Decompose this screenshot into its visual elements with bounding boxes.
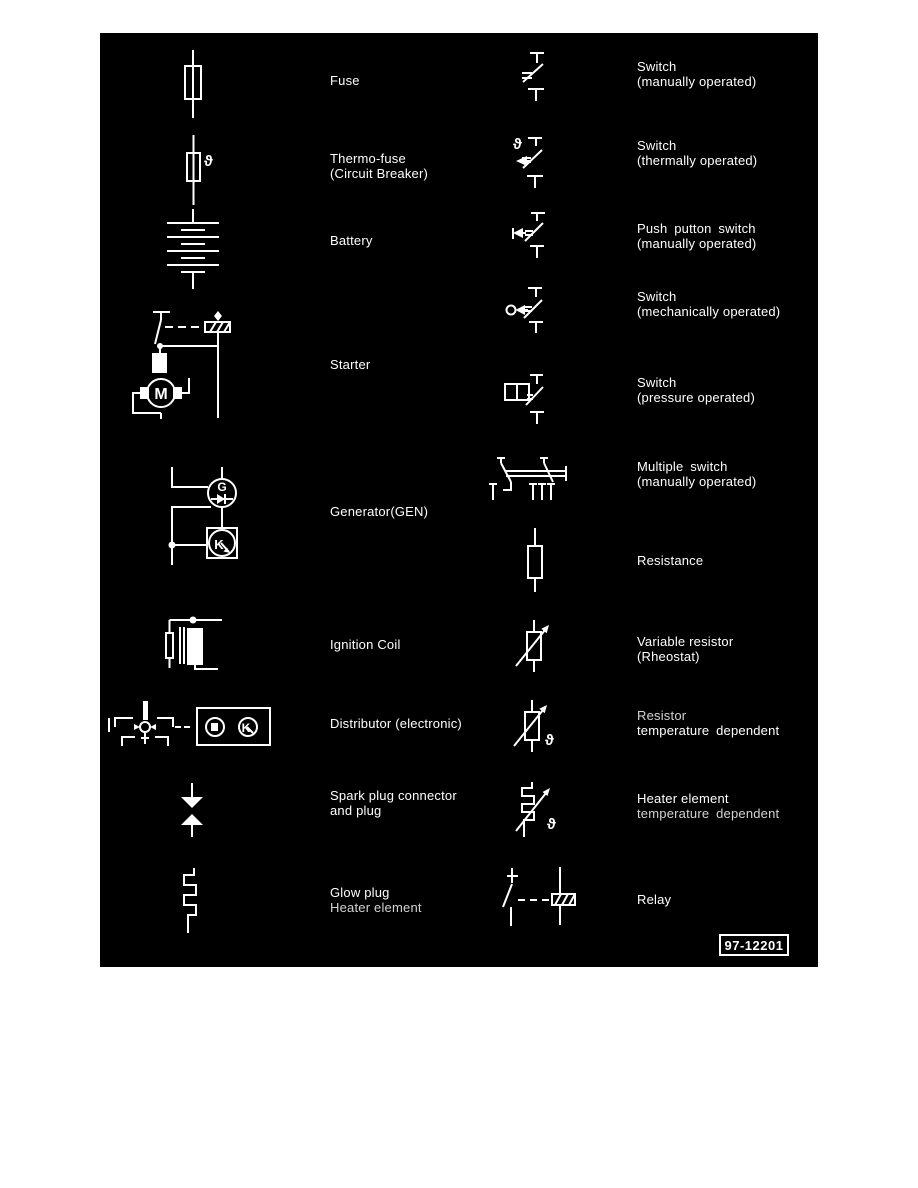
theta-glyph: ϑ — [204, 153, 213, 170]
symbol-legend-panel: ϑ — [100, 33, 818, 967]
label-line: Resistance — [637, 554, 703, 569]
label-line: (Circuit Breaker) — [330, 167, 428, 182]
label-line: and plug — [330, 804, 457, 819]
label-line: Generator(GEN) — [330, 505, 428, 520]
switch-mechanical-label: Switch (mechanically operated) — [637, 290, 780, 319]
resistor-temperature-dependent-icon: ϑ — [510, 700, 560, 754]
label-line: Ignition Coil — [330, 638, 401, 653]
switch-pressure-label: Switch (pressure operated) — [637, 376, 755, 405]
label-line: temperature dependent — [637, 724, 779, 739]
label-line: Glow plug — [330, 886, 422, 901]
heater-element-temperature-dependent-label: Heater element temperature dependent — [637, 792, 779, 821]
switch-pressure-operated-icon — [503, 372, 549, 426]
variable-resistor-label: Variable resistor (Rheostat) — [637, 635, 733, 664]
switch-manual-label: Switch (manually operated) — [637, 60, 756, 89]
starter-icon: M — [130, 310, 260, 422]
label-line: (manually operated) — [637, 475, 756, 490]
spark-plug-connector-label: Spark plug connector and plug — [330, 789, 457, 818]
switch-thermal-label: Switch (thermally operated) — [637, 139, 757, 168]
glow-plug-icon — [180, 868, 204, 934]
fuse-label: Fuse — [330, 74, 360, 89]
generator-icon: G K — [158, 465, 248, 573]
battery-icon — [164, 209, 222, 289]
switch-manually-operated-icon — [521, 51, 547, 101]
label-line: Fuse — [330, 74, 360, 89]
label-line: Switch — [637, 290, 780, 305]
label-line: Distributor (electronic) — [330, 717, 462, 732]
label-line: temperature dependent — [637, 807, 779, 822]
thermo-fuse-label: Thermo-fuse (Circuit Breaker) — [330, 152, 428, 181]
theta-glyph: ϑ — [545, 732, 554, 749]
label-line: (Rheostat) — [637, 650, 733, 665]
theta-glyph: ϑ — [513, 136, 522, 153]
heater-element-temperature-dependent-icon: ϑ — [512, 781, 562, 839]
label-line: Switch — [637, 376, 755, 391]
label-line: (thermally operated) — [637, 154, 757, 169]
resistance-icon — [526, 528, 544, 592]
relay-icon — [494, 864, 582, 928]
label-line: (manually operated) — [637, 75, 756, 90]
glow-plug-label: Glow plug Heater element — [330, 886, 422, 915]
generator-letter: G — [217, 480, 226, 494]
battery-label: Battery — [330, 234, 373, 249]
label-line: Resistor — [637, 709, 779, 724]
label-line: Switch — [637, 60, 756, 75]
push-button-switch-icon — [510, 211, 548, 261]
label-line: Relay — [637, 893, 671, 908]
thermo-fuse-icon: ϑ — [184, 135, 218, 205]
theta-glyph: ϑ — [547, 816, 556, 833]
label-line: Variable resistor — [637, 635, 733, 650]
label-line: Multiple switch — [637, 460, 756, 475]
multiple-switch-icon — [488, 448, 580, 500]
spark-plug-connector-icon — [176, 782, 208, 838]
resistance-label: Resistance — [637, 554, 703, 569]
switch-mechanically-operated-icon — [501, 286, 547, 336]
switch-thermally-operated-icon: ϑ — [511, 133, 551, 189]
starter-label: Starter — [330, 358, 370, 373]
resistor-temperature-dependent-label: Resistor temperature dependent — [637, 709, 779, 738]
label-line: Spark plug connector — [330, 789, 457, 804]
push-button-switch-label: Push putton switch (manually operated) — [637, 222, 756, 251]
label-line: Switch — [637, 139, 757, 154]
label-line: (pressure operated) — [637, 391, 755, 406]
ignition-coil-label: Ignition Coil — [330, 638, 401, 653]
distributor-icon: K — [107, 698, 273, 758]
relay-label: Relay — [637, 893, 671, 908]
label-line: Battery — [330, 234, 373, 249]
label-line: Starter — [330, 358, 370, 373]
label-line: Heater element — [330, 901, 422, 916]
label-line: (manually operated) — [637, 237, 756, 252]
scanned-manual-page: ϑ — [0, 0, 918, 1188]
label-line: Heater element — [637, 792, 779, 807]
label-line: Push putton switch — [637, 222, 756, 237]
label-line: (mechanically operated) — [637, 305, 780, 320]
distributor-label: Distributor (electronic) — [330, 717, 462, 732]
multiple-switch-label: Multiple switch (manually operated) — [637, 460, 756, 489]
variable-resistor-icon — [512, 620, 556, 672]
figure-number-badge: 97-12201 — [719, 934, 789, 956]
ignition-coil-icon — [160, 612, 230, 674]
motor-letter: M — [154, 386, 167, 403]
generator-label: Generator(GEN) — [330, 505, 428, 520]
label-line: Thermo-fuse — [330, 152, 428, 167]
fuse-icon — [178, 50, 208, 118]
